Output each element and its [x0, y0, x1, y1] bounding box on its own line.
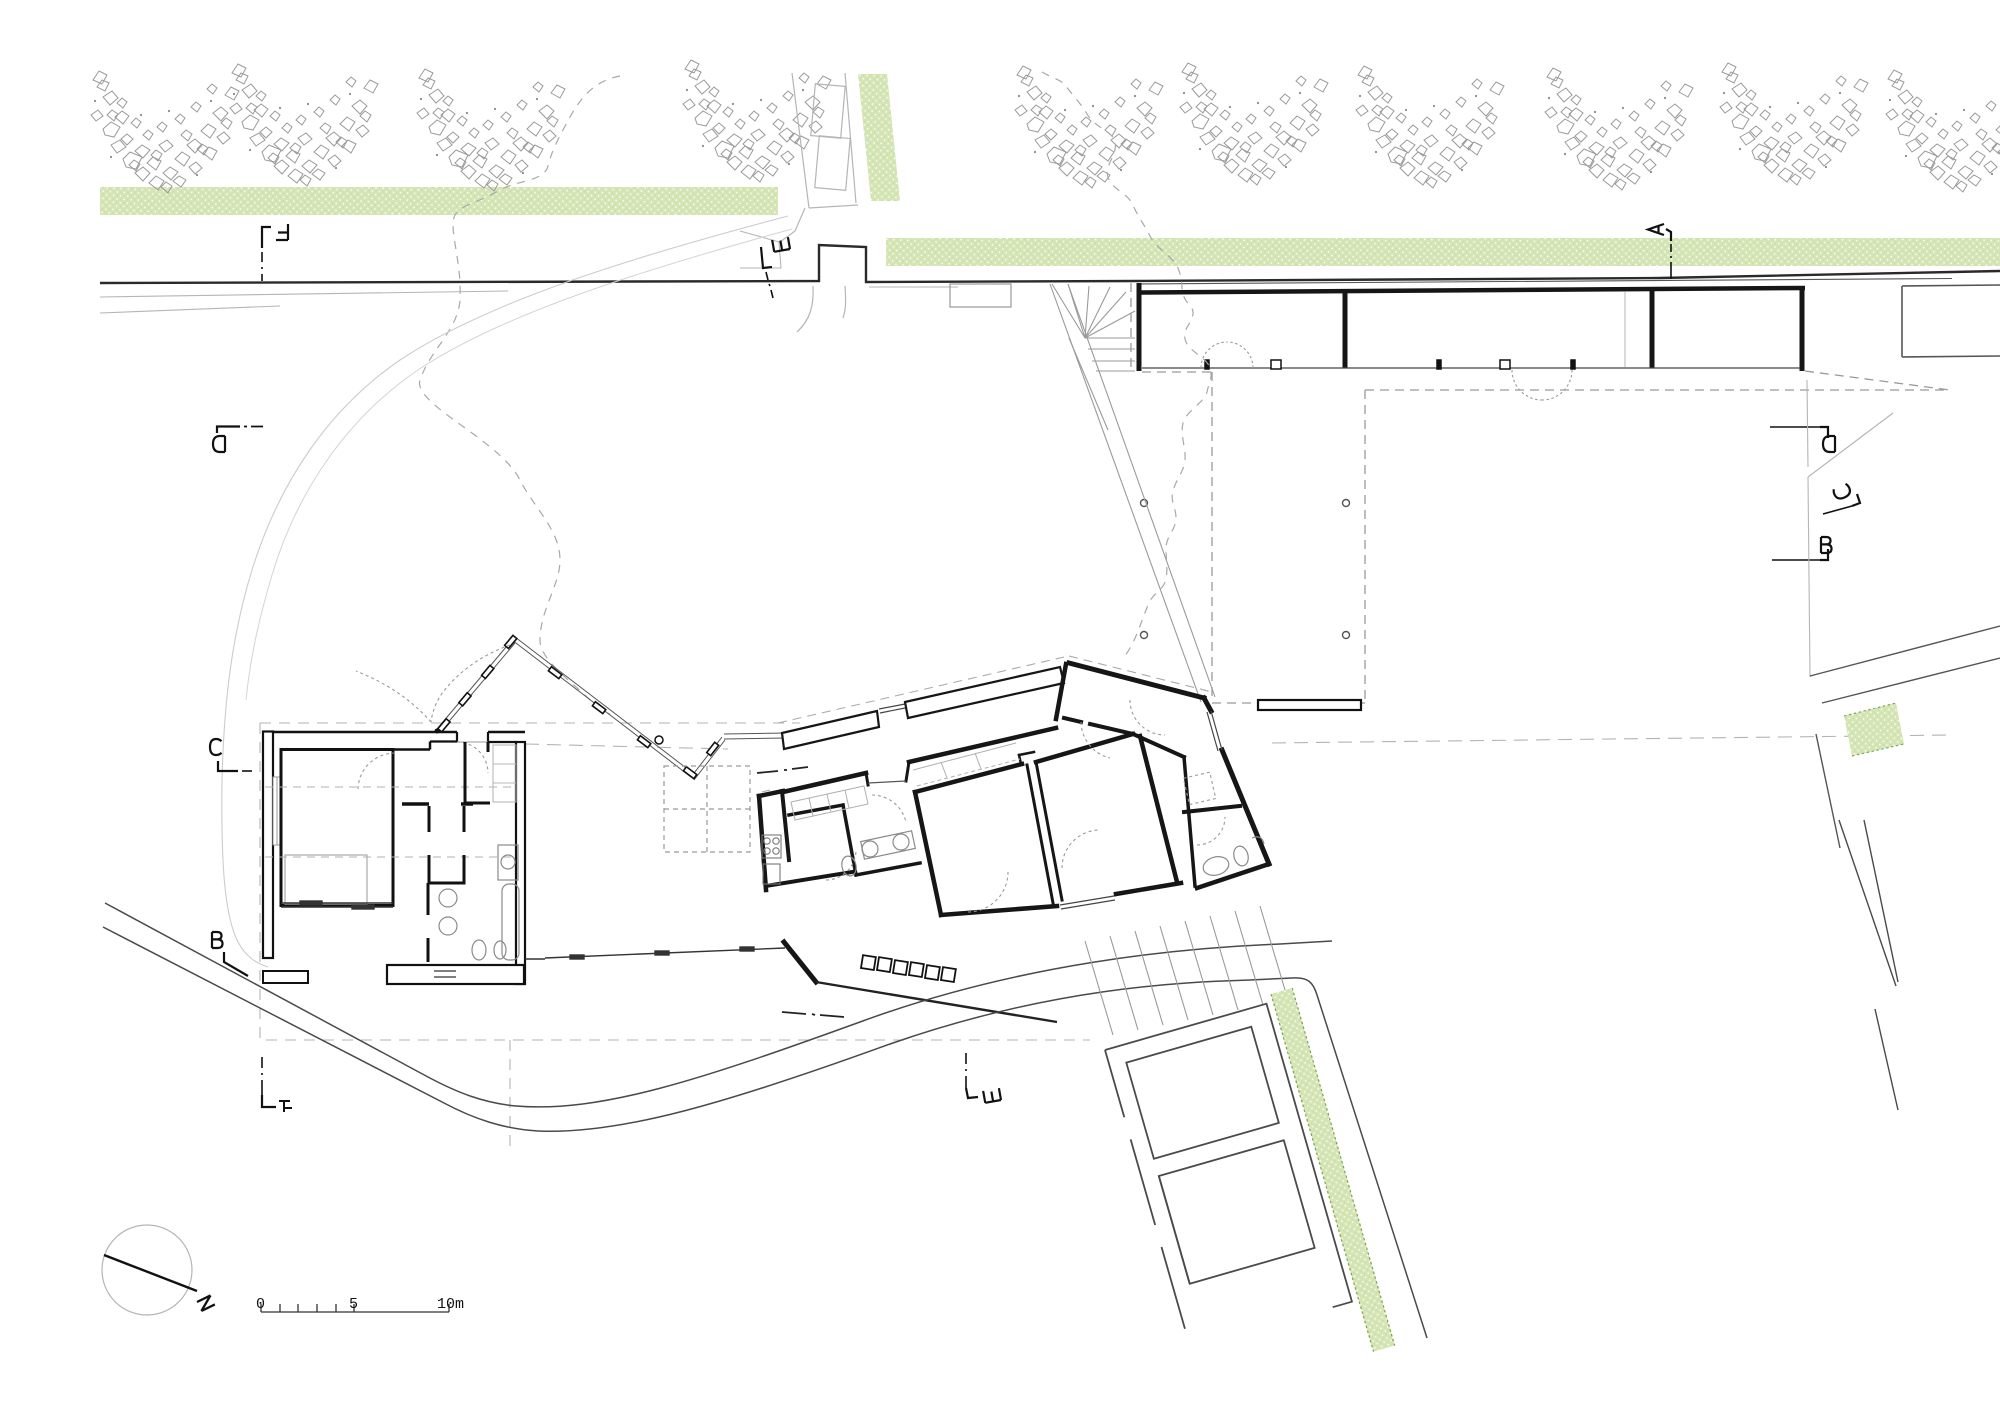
svg-text:10m: 10m: [437, 1296, 464, 1313]
svg-text:0: 0: [256, 1296, 265, 1313]
svg-text:5: 5: [349, 1296, 358, 1313]
